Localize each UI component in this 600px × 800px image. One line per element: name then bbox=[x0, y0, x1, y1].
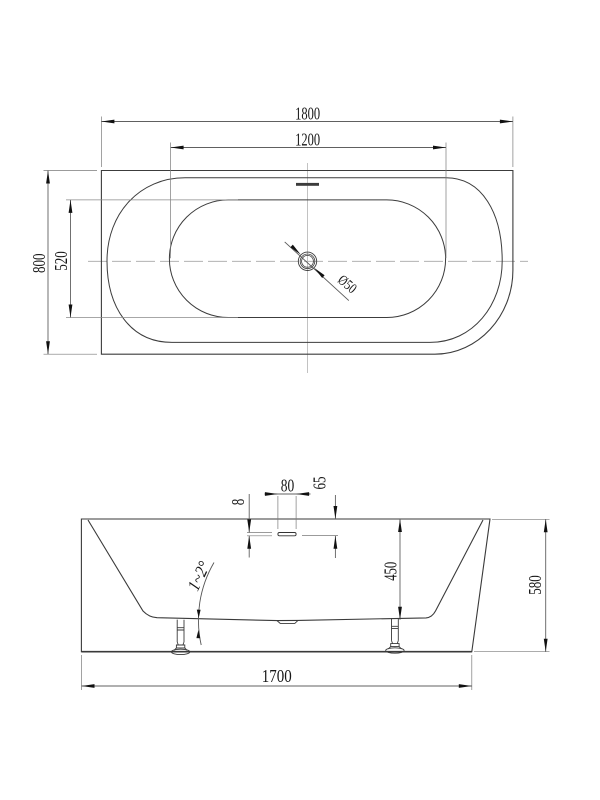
svg-text:8: 8 bbox=[228, 499, 248, 506]
svg-text:800: 800 bbox=[29, 253, 49, 273]
svg-text:520: 520 bbox=[51, 251, 71, 271]
svg-text:1700: 1700 bbox=[262, 666, 292, 686]
svg-text:80: 80 bbox=[281, 475, 295, 495]
svg-text:1~2°: 1~2° bbox=[183, 558, 214, 594]
svg-text:580: 580 bbox=[525, 575, 545, 595]
svg-text:450: 450 bbox=[381, 562, 401, 581]
svg-text:65: 65 bbox=[310, 477, 330, 490]
svg-text:1200: 1200 bbox=[295, 129, 320, 149]
svg-text:Ø50: Ø50 bbox=[334, 272, 359, 297]
svg-text:1800: 1800 bbox=[295, 103, 320, 123]
